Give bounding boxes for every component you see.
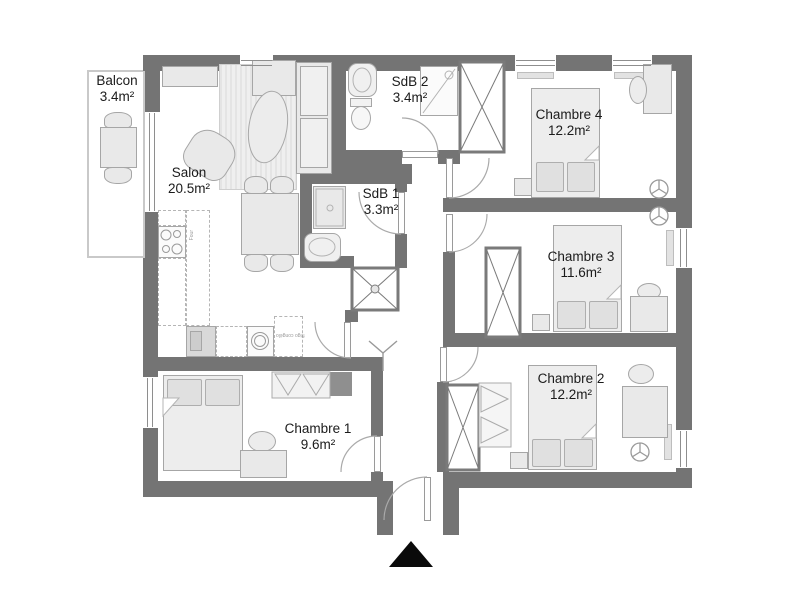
window-sill <box>517 72 554 79</box>
room-label-balcon: Balcon 3.4m² <box>88 73 146 105</box>
room-name: Chambre 4 <box>509 107 629 123</box>
wall-vestibule-left <box>377 481 393 535</box>
floor-plan: Four frigo congélo <box>0 0 800 600</box>
closet-chambre4 <box>460 62 504 152</box>
desk-chambre4 <box>643 64 672 114</box>
kitchen-counter <box>158 258 186 326</box>
pillow <box>532 439 561 467</box>
window-chambre3 <box>676 228 692 268</box>
pillow <box>205 379 240 406</box>
pillow <box>589 301 618 329</box>
sink-basin <box>190 331 202 351</box>
window-sill <box>666 230 674 266</box>
wall-kitchen-hall <box>345 310 358 322</box>
dishwasher <box>216 326 247 357</box>
wall-left-upper <box>145 55 160 112</box>
wall-right <box>676 55 692 488</box>
door-kitchen <box>344 322 351 358</box>
wall-hall-right-lower <box>437 382 449 472</box>
kitchen-counter <box>158 210 186 226</box>
technical-duct <box>330 372 352 396</box>
balcony-chair <box>104 167 132 184</box>
pillow <box>536 162 564 192</box>
dining-chair <box>244 254 268 272</box>
nightstand <box>532 314 550 331</box>
room-label-chambre1: Chambre 1 9.6m² <box>248 421 388 453</box>
door-chambre3 <box>446 214 453 252</box>
room-name: Salon <box>144 165 234 181</box>
window-balcony <box>145 112 160 212</box>
wall-hall-right <box>443 150 455 158</box>
room-name: Chambre 3 <box>521 249 641 265</box>
room-area: 3.3m² <box>346 202 416 218</box>
entrance-arrow-icon <box>389 541 433 567</box>
sofa-cushion <box>300 66 328 116</box>
room-area: 3.4m² <box>375 90 445 106</box>
washing-machine <box>247 326 274 357</box>
balcony-table <box>100 127 137 168</box>
desk-chair <box>629 76 647 104</box>
wall-bottom-left <box>143 481 393 497</box>
sofa-cushion <box>300 118 328 168</box>
wall-hall-right <box>443 252 455 333</box>
window-chambre2 <box>676 430 692 468</box>
room-area: 9.6m² <box>248 437 388 453</box>
room-area: 12.2m² <box>511 387 631 403</box>
oven-label: Four <box>190 230 195 240</box>
dining-chair <box>270 176 294 194</box>
door-chambre2 <box>440 347 447 382</box>
wall-sdb2-bottom <box>332 150 402 164</box>
room-label-chambre4: Chambre 4 12.2m² <box>509 107 629 139</box>
room-label-sdb1: SdB 1 3.3m² <box>346 186 416 218</box>
nightstand <box>510 452 528 469</box>
room-name: SdB 2 <box>375 74 445 90</box>
room-label-chambre2: Chambre 2 12.2m² <box>511 371 631 403</box>
nightstand <box>514 178 532 196</box>
window-chambre1 <box>143 377 158 428</box>
door-chambre4 <box>446 158 453 198</box>
room-label-chambre3: Chambre 3 11.6m² <box>521 249 641 281</box>
dining-chair <box>244 176 268 194</box>
kitchen-counter <box>186 210 210 326</box>
dining-table <box>241 193 299 255</box>
fridge-label: frigo congélo <box>276 332 305 337</box>
window-chambre4-left <box>515 55 556 71</box>
wall-hall-left <box>371 472 383 481</box>
wall-chambre4-chambre3 <box>443 198 692 212</box>
pillow <box>167 379 202 406</box>
technical-shaft <box>352 268 398 310</box>
closet-chambre3 <box>486 248 520 337</box>
wall-chambre1-top <box>143 357 383 371</box>
room-area: 12.2m² <box>509 123 629 139</box>
pillow <box>557 301 586 329</box>
dining-chair <box>270 254 294 272</box>
door-entrance <box>424 477 431 521</box>
pillow <box>567 162 595 192</box>
room-name: SdB 1 <box>346 186 416 202</box>
sofa-chaise <box>252 60 296 96</box>
room-label-salon: Salon 20.5m² <box>144 165 234 197</box>
closet-chambre2 <box>447 385 479 470</box>
open-closet-chambre2 <box>479 383 511 447</box>
desk-chair <box>628 364 654 384</box>
wall-salon-sdb2 <box>332 55 346 162</box>
desk-chambre1 <box>240 450 287 478</box>
room-name: Chambre 2 <box>511 371 631 387</box>
room-area: 11.6m² <box>521 265 641 281</box>
room-area: 3.4m² <box>88 89 146 105</box>
wall-chambre3-chambre2 <box>443 333 692 347</box>
wall-bottom-right <box>443 472 692 488</box>
desk-chambre3 <box>630 296 668 332</box>
toilet-bowl <box>351 106 371 130</box>
room-label-sdb2: SdB 2 3.4m² <box>375 74 445 106</box>
pillow <box>564 439 593 467</box>
open-closet-chambre1 <box>272 372 330 398</box>
room-name: Chambre 1 <box>248 421 388 437</box>
room-name: Balcon <box>88 73 146 89</box>
room-area: 20.5m² <box>144 181 234 197</box>
stove <box>158 226 186 258</box>
wall-sdb1-right <box>395 234 407 268</box>
sdb1-washbasin <box>304 233 341 262</box>
door-sdb2 <box>402 151 438 158</box>
sdb1-shower <box>313 186 346 229</box>
sdb2-washbasin <box>348 63 377 97</box>
salon-sideboard <box>162 66 218 87</box>
